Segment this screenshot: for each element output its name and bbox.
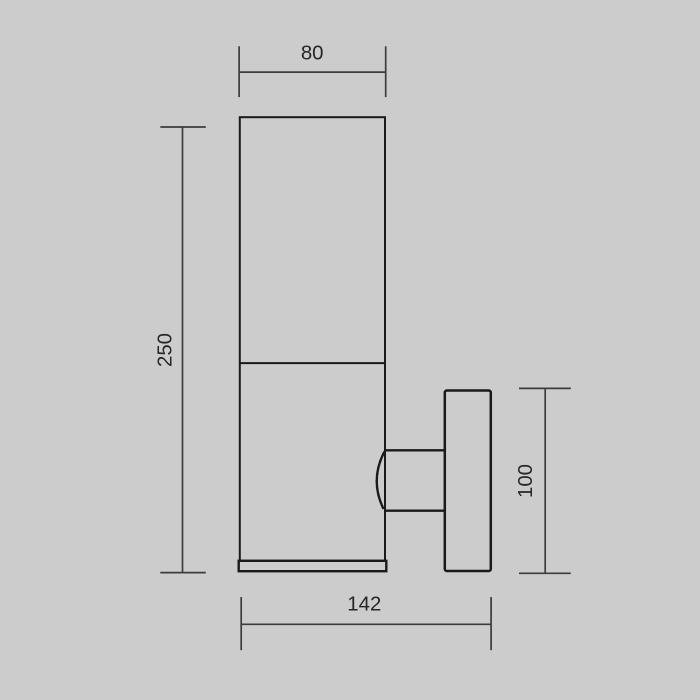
svg-text:100: 100 xyxy=(515,464,537,498)
svg-text:80: 80 xyxy=(301,42,324,64)
svg-text:142: 142 xyxy=(347,593,381,615)
svg-text:250: 250 xyxy=(154,333,176,367)
